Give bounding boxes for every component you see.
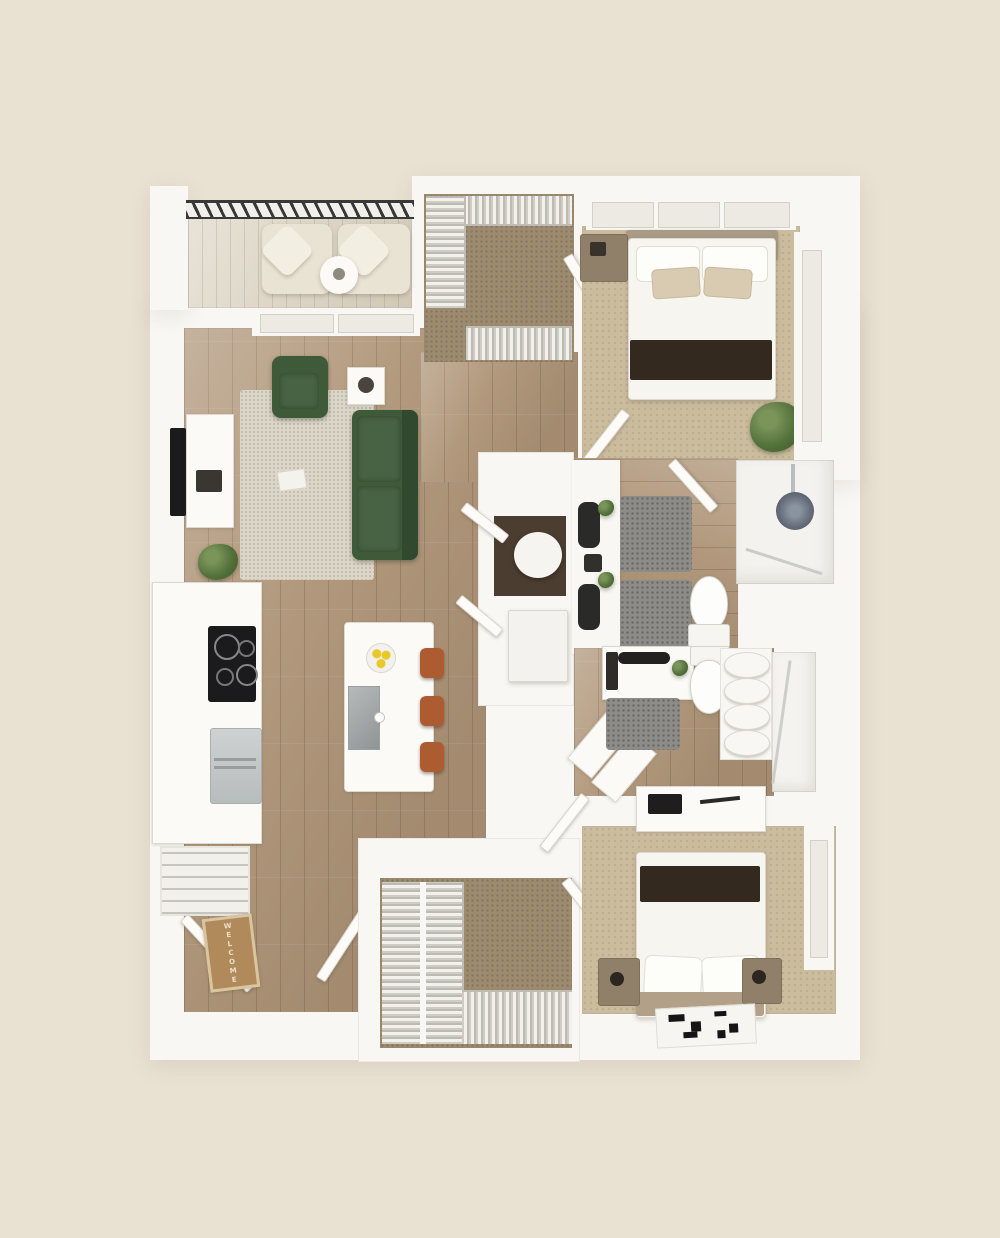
tv (170, 428, 186, 516)
clothes-rack (426, 882, 464, 1044)
towel-roll (724, 730, 770, 756)
side-table-decor (358, 377, 374, 393)
armchair (272, 356, 328, 418)
burner (238, 640, 255, 657)
bedroom2-rug (655, 1003, 757, 1048)
clothes-rack (382, 882, 422, 1044)
floor-plan: WELCOME (0, 0, 1000, 1238)
towel-roll (724, 652, 770, 678)
welcome-mat-text: WELCOME (223, 921, 239, 985)
balcony-side-wall (150, 186, 188, 310)
window-pane (724, 202, 790, 228)
shower-head (776, 492, 814, 530)
bath-rug (620, 580, 692, 652)
vanity-sink (578, 584, 600, 630)
vanity-sink (578, 502, 600, 548)
burner (236, 664, 258, 686)
console-decor (196, 470, 222, 492)
toilet (690, 576, 728, 630)
window-pane (658, 202, 720, 228)
window-pane (592, 202, 654, 228)
sofa-cushion (357, 486, 401, 552)
towel-roll (724, 678, 770, 704)
fridge-handle (214, 758, 256, 761)
burner (214, 634, 240, 660)
balcony-table-decor (333, 268, 345, 280)
lamp (752, 970, 766, 984)
welcome-mat: WELCOME (202, 913, 261, 993)
coffee-table-books (277, 468, 308, 492)
kitchen-counter (152, 582, 262, 844)
vanity-tray (584, 554, 602, 572)
faucet (374, 712, 385, 723)
bed1-accent-pillow (703, 266, 753, 299)
bath-rug (620, 496, 692, 572)
window-pane (802, 250, 822, 442)
bar-stool (420, 696, 444, 726)
shower2 (772, 652, 816, 792)
fridge-handle (214, 766, 256, 769)
clothes-rack (466, 326, 572, 360)
balcony-railing (186, 200, 414, 219)
bar-stool (420, 742, 444, 772)
bed1-accent-pillow (651, 266, 701, 299)
window-pane (810, 840, 828, 958)
lamp (610, 972, 624, 986)
vanity-faucet (618, 652, 670, 664)
burner (216, 668, 234, 686)
bar-stool (420, 648, 444, 678)
fruit-bowl (366, 643, 396, 673)
bistro-table (514, 532, 562, 578)
washer-dryer (508, 610, 568, 682)
toilet-tank (688, 624, 730, 648)
clothes-rack (462, 990, 572, 1044)
bed2-throw (640, 866, 760, 902)
window-pane (338, 314, 414, 333)
bed1-throw (630, 340, 772, 380)
clothes-rack (426, 196, 466, 308)
towel-roll (724, 704, 770, 730)
vanity-decor (606, 652, 618, 690)
bath-rug (606, 698, 680, 750)
dresser-decor (648, 794, 682, 814)
sofa-cushion (357, 416, 401, 482)
pantry-shelves (160, 846, 250, 916)
sofa-backrest (402, 410, 418, 560)
nightstand-decor (590, 242, 606, 256)
window-pane (260, 314, 334, 333)
sofa (352, 410, 418, 560)
